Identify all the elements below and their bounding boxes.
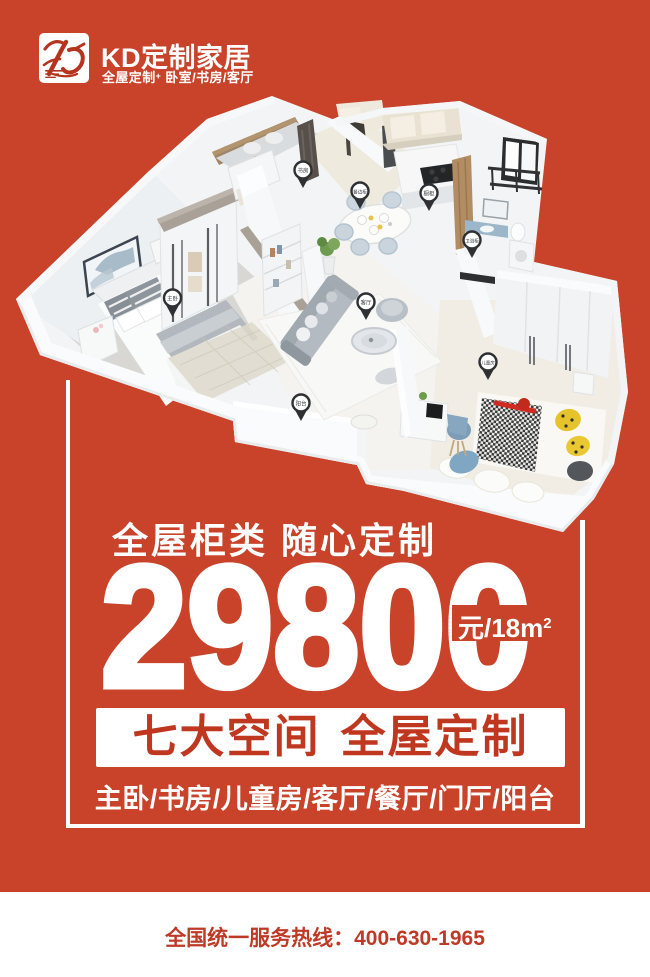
svg-text:卫浴柜: 卫浴柜: [465, 238, 479, 245]
svg-text:书房: 书房: [297, 167, 309, 175]
svg-text:餐边柜: 餐边柜: [353, 189, 367, 196]
svg-text:儿童房: 儿童房: [481, 360, 495, 367]
svg-text:客厅: 客厅: [360, 299, 372, 307]
svg-text:橱柜: 橱柜: [423, 190, 435, 198]
svg-text:阳台: 阳台: [295, 400, 307, 408]
svg-text:主卧: 主卧: [167, 295, 179, 303]
